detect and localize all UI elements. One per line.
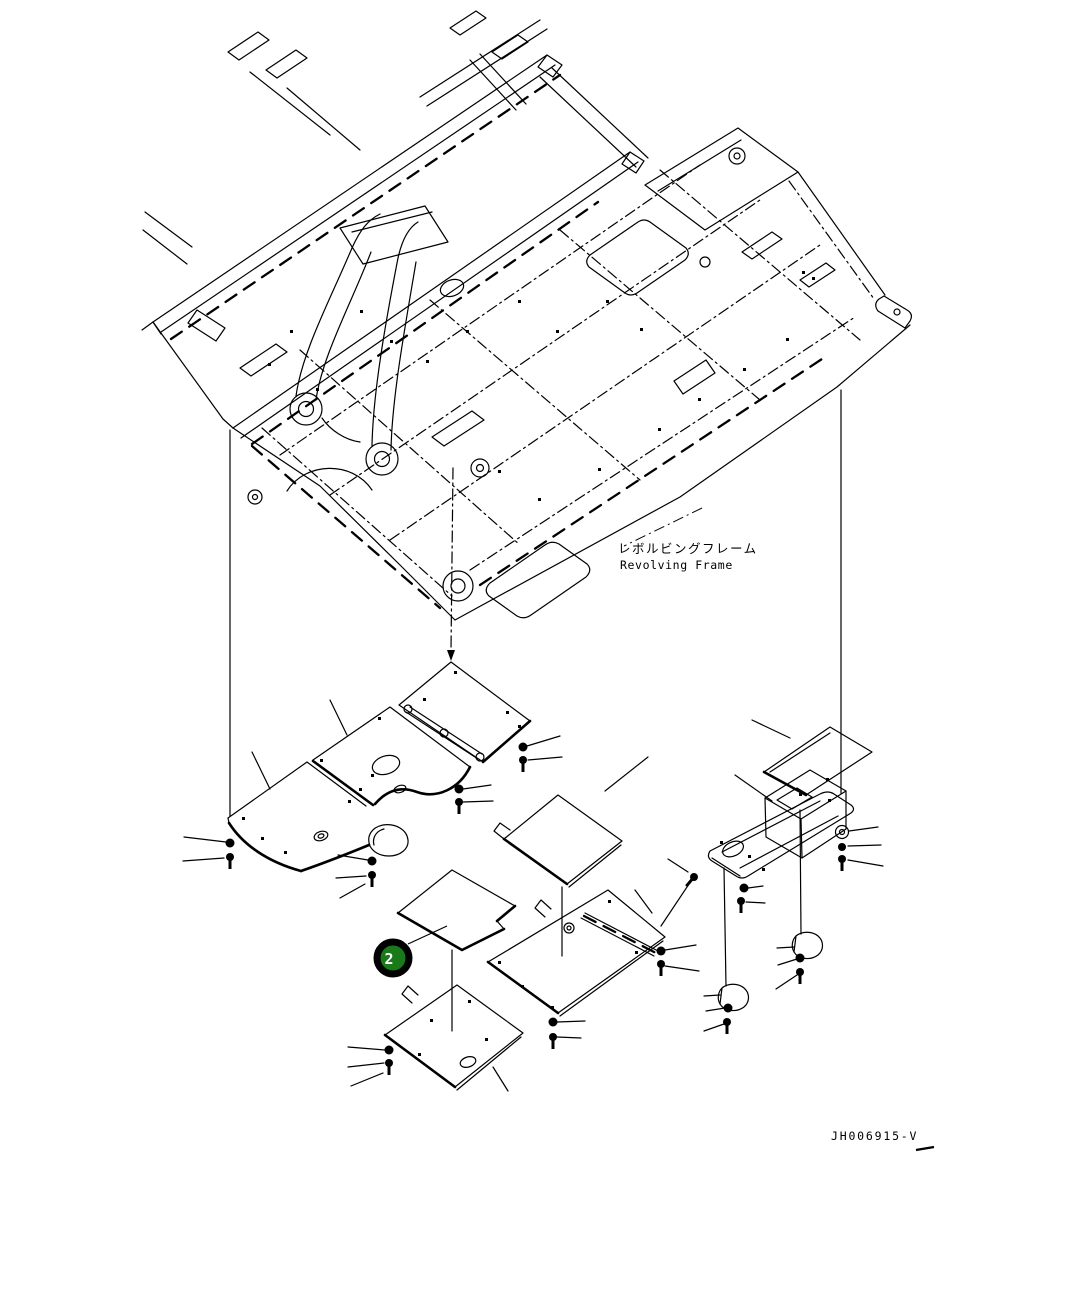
bolt-set-mid-bottom — [549, 1018, 586, 1050]
right-cover-assembly — [704, 727, 872, 1011]
leader-lines — [230, 390, 841, 1091]
callout-balloon-2[interactable]: 2 — [377, 926, 447, 974]
bolt-set-under-plate — [737, 884, 765, 914]
bolt-set-clip-upper — [776, 954, 805, 990]
bolt-set-assembly-right — [838, 827, 883, 871]
cover-plate-bottom-left — [385, 985, 523, 1090]
bolt-set-upper-right — [519, 736, 563, 772]
footer-dash — [916, 1147, 934, 1150]
frame-bolt-dots — [268, 271, 815, 501]
bolt-set-mid — [336, 855, 377, 898]
bolt-set-bottom-left — [348, 1046, 394, 1087]
under-cover-plates — [228, 662, 665, 1090]
assembly-top-plate — [764, 727, 872, 795]
cover-plate-right-middle — [488, 890, 665, 1016]
bolt-set-clip-lower — [704, 1004, 733, 1035]
bolt-set-assembly-left — [661, 859, 700, 926]
revolving-frame-illustration — [142, 11, 911, 620]
fasteners — [183, 736, 883, 1086]
frame-label-english: Revolving Frame — [620, 558, 733, 572]
parts-diagram-page: 2 レボルビングフレーム Revolving Frame JH006915-V — [0, 0, 1084, 1304]
bolt-set-left — [183, 837, 235, 869]
cover-plate-notched — [398, 870, 515, 950]
cover-plate-bar — [399, 662, 530, 762]
bolt-set-center-right — [455, 785, 494, 815]
assembly-mount-plate — [708, 792, 853, 878]
cover-plate-left — [228, 762, 369, 871]
parts-diagram-canvas: 2 レボルビングフレーム Revolving Frame JH006915-V — [0, 0, 1084, 1304]
cover-plate-small — [494, 795, 622, 887]
drawing-number: JH006915-V — [831, 1129, 918, 1143]
assembly-box — [765, 770, 846, 858]
frame-label-japanese: レボルビングフレーム — [618, 541, 758, 556]
callout-number: 2 — [384, 950, 393, 968]
bolt-set-plate-right — [657, 945, 700, 976]
